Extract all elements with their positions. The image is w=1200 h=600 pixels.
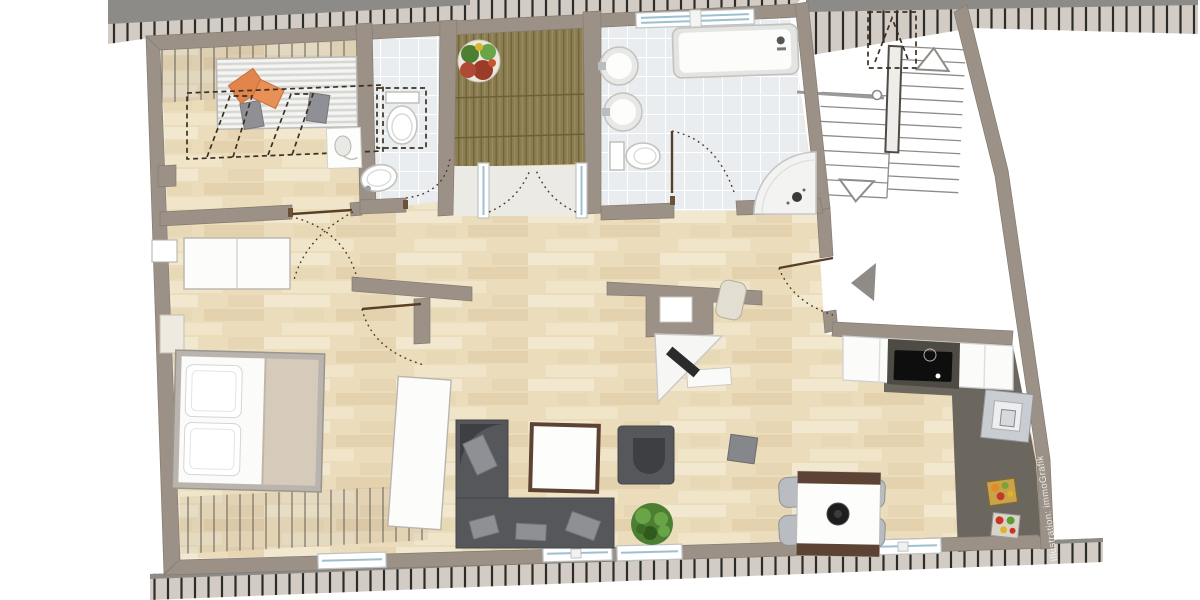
stainless-unit bbox=[981, 390, 1034, 443]
armchair bbox=[618, 426, 674, 484]
door-jamb bbox=[403, 200, 408, 209]
fruit-crate-1 bbox=[986, 478, 1017, 506]
entrance-arrow bbox=[851, 263, 876, 301]
dining-table bbox=[796, 471, 880, 556]
potted-plant bbox=[631, 503, 673, 545]
roof-hatch-top-right bbox=[806, 0, 1198, 56]
radiator bbox=[160, 315, 184, 353]
bathtub bbox=[672, 24, 799, 78]
sideboard bbox=[184, 238, 290, 289]
cooktop bbox=[893, 350, 952, 382]
gray-cushion bbox=[306, 93, 330, 124]
wc-toilet bbox=[386, 92, 419, 144]
double-bed bbox=[172, 350, 325, 492]
bath-toilet bbox=[610, 142, 660, 170]
door-jamb bbox=[670, 196, 675, 205]
bedroom-wall-niche-window bbox=[152, 240, 177, 262]
door-jamb bbox=[288, 208, 293, 217]
living-window-2 bbox=[617, 544, 682, 561]
study-partition-niche bbox=[660, 297, 692, 322]
floor-plan-image: Illustration: immoGrafik bbox=[0, 0, 1200, 600]
side-stool bbox=[727, 434, 757, 464]
corner-basin bbox=[326, 127, 361, 168]
wall-landing-a bbox=[817, 208, 833, 258]
coffee-table bbox=[530, 424, 599, 492]
flower-pot bbox=[458, 40, 500, 82]
stair-down-arrow bbox=[839, 179, 874, 202]
terrace-doorway-threshold bbox=[452, 166, 590, 216]
bedroom-window bbox=[318, 552, 386, 569]
floor-plan-svg: Illustration: immoGrafik bbox=[0, 0, 1200, 600]
gray-cushion bbox=[240, 100, 264, 129]
wall-wc-bottom bbox=[360, 198, 406, 214]
wall-left-pier bbox=[158, 165, 176, 187]
wall-bath-bottom-a bbox=[601, 203, 674, 220]
fruit-crate-2 bbox=[991, 513, 1020, 539]
stair-up-arrow bbox=[917, 47, 950, 71]
stair-stringer bbox=[883, 46, 904, 153]
handrail-post bbox=[873, 91, 882, 100]
wardrobe bbox=[388, 376, 451, 529]
